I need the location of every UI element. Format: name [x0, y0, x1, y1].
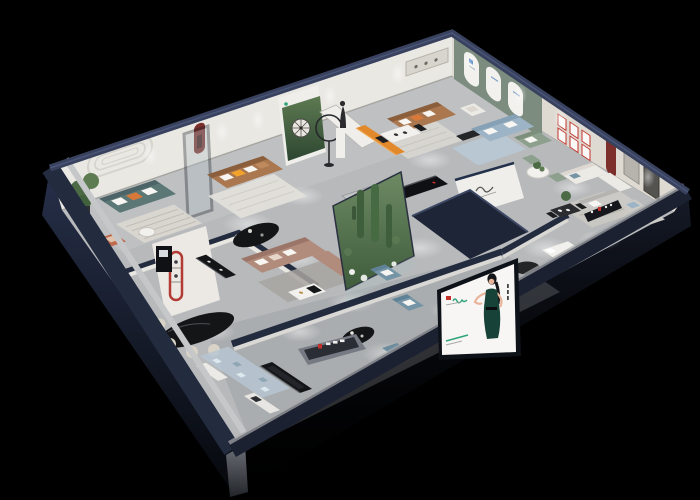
model-belt	[486, 307, 497, 310]
billboard-logo-red	[446, 296, 451, 300]
forest-poster-partition	[278, 85, 326, 166]
model-face	[489, 279, 495, 285]
wall-glow	[323, 85, 337, 107]
wall-glow	[215, 121, 229, 143]
wall-glow	[251, 109, 265, 131]
cactus	[371, 184, 379, 242]
cactus	[357, 190, 364, 238]
potted-plant-small	[561, 191, 571, 201]
model-gown	[484, 289, 500, 340]
poster-brand-mark	[284, 102, 288, 106]
shelf-brand-mark	[598, 207, 601, 211]
wall-glow	[513, 84, 527, 106]
black-display-cabinet	[156, 246, 172, 272]
wall-glow	[143, 144, 157, 166]
cabinet-screen	[159, 250, 168, 257]
showroom-scene	[0, 0, 700, 500]
glass-divider-panel	[184, 126, 212, 218]
wall-glow	[463, 51, 477, 73]
wall-glow	[391, 63, 405, 85]
table-decor	[248, 229, 252, 233]
round-side-table	[139, 228, 155, 237]
vertical-caption	[507, 284, 509, 288]
cactus-arm	[352, 206, 356, 220]
showroom-isometric-render	[0, 0, 700, 500]
cactus	[386, 204, 392, 248]
tea-set	[350, 331, 354, 335]
white-flowers	[349, 269, 355, 275]
sign-brand-mark	[318, 344, 322, 349]
pedestal	[336, 128, 345, 158]
